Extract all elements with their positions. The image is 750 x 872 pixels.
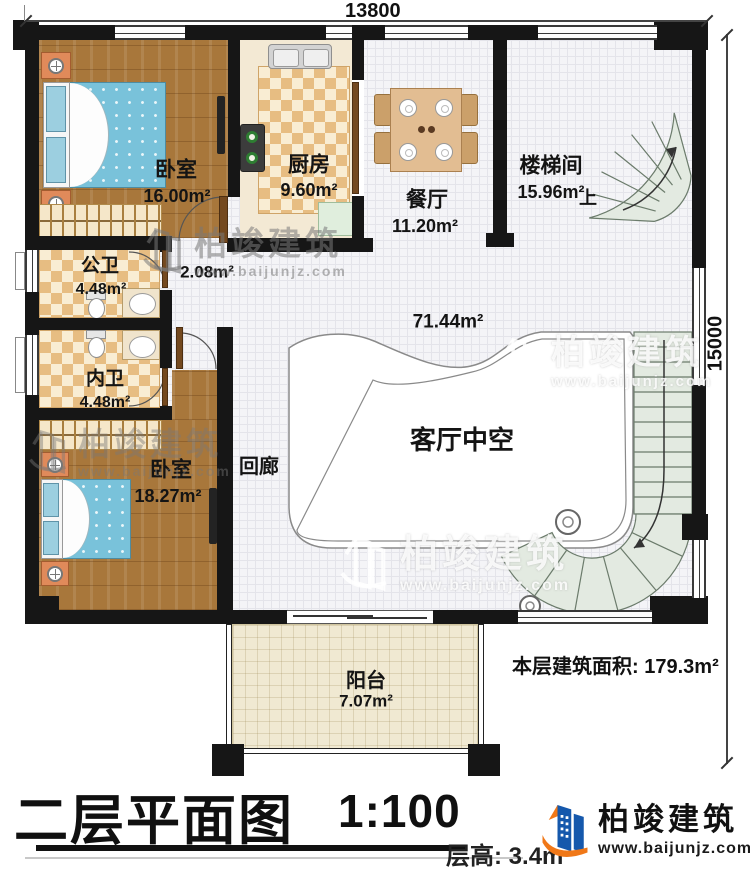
wall-under-bedroom1 [25,236,172,250]
floor-height-label: 层高: [446,843,502,870]
floor-area-label: 本层建筑面积: [512,656,639,678]
bedroom1-door-leaf [219,196,228,243]
dimension-line-right [726,34,728,764]
void-area: 71.44m² [413,313,484,332]
drawing-scale: 1:100 [338,784,461,838]
wall-between-baths [25,318,172,330]
stairs-up-label: 上 [579,189,597,207]
wall-under-kitchen [227,238,373,252]
window [518,610,652,624]
kitchen-door-leaf [352,82,359,194]
wall-bedroom1-kitchen [228,40,240,197]
window [25,335,39,395]
stairwell-label: 楼梯间 [520,156,583,177]
balcony-sliding-door [287,610,433,624]
void-label: 客厅中空 [410,427,514,453]
wall-bedroom2-right [217,327,233,610]
door-arcs [129,197,223,406]
public-bath-label: 公卫 [81,257,119,276]
wall-dining-stairwell-cap [486,233,514,247]
kitchen-area: 9.60m² [280,181,337,199]
dining-label: 餐厅 [406,190,448,211]
kitchen-label: 厨房 [288,155,330,176]
window [115,25,185,40]
public-bath-area: 4.48m² [76,282,127,298]
corner-pillar [650,596,708,624]
dining-area: 11.20m² [392,217,458,235]
wall-kitchen-dining-lower [352,196,364,240]
brand-logo: 柏竣建筑 www.baijunjz.com [540,800,750,860]
stair-post [556,510,580,534]
title-underline [36,845,466,851]
private-bath-area: 4.48m² [80,395,131,411]
brand-logo-icon [540,800,590,860]
plan-linework [0,0,750,872]
window [692,540,706,598]
dimension-right-value: 15000 [705,309,728,379]
public-bath-door-leaf [162,250,168,288]
private-bath-label: 内卫 [86,370,124,389]
corner-pillar [654,20,708,50]
wall-dining-stairwell [493,40,507,233]
window-sill [15,337,25,393]
balcony-label: 阳台 [346,671,386,691]
window [25,250,39,292]
window [385,25,468,40]
bedroom2-area: 18.27m² [134,487,201,505]
corner-pillar [25,596,59,624]
floor-area-total: 本层建筑面积: 179.3m² [512,650,719,679]
private-bath-door-leaf [162,368,168,406]
stairwell-area: 15.96m² [517,183,584,201]
bedroom2-label: 卧室 [150,460,192,481]
balcony-area: 7.07m² [339,693,393,710]
brand-logo-name: 柏竣建筑 [598,804,750,835]
bedroom1-label: 卧室 [155,160,197,181]
stairs-upper-fan [589,113,691,221]
window [326,25,352,40]
bedroom2-door-leaf [176,327,183,369]
brand-logo-url: www.baijunjz.com [598,841,750,857]
page-title: 二层平面图 [14,776,294,855]
window [538,25,657,40]
floor-area-value: 179.3m² [644,656,719,678]
hall-area: 2.08m² [180,264,234,281]
corner-pillar [13,20,39,50]
window-sill [15,252,25,290]
bedroom1-area: 16.00m² [143,187,210,205]
corridor-label: 回廊 [239,457,279,477]
dimension-top-value: 13800 [345,0,401,23]
stair-corner-pillar [682,514,708,540]
floor-plan-canvas: 卧室 16.00m² 厨房 9.60m² 餐厅 11.20m² 楼梯间 15.9… [0,0,750,872]
dimension-ext [24,5,25,21]
wall-kitchen-dining-upper [352,40,364,80]
